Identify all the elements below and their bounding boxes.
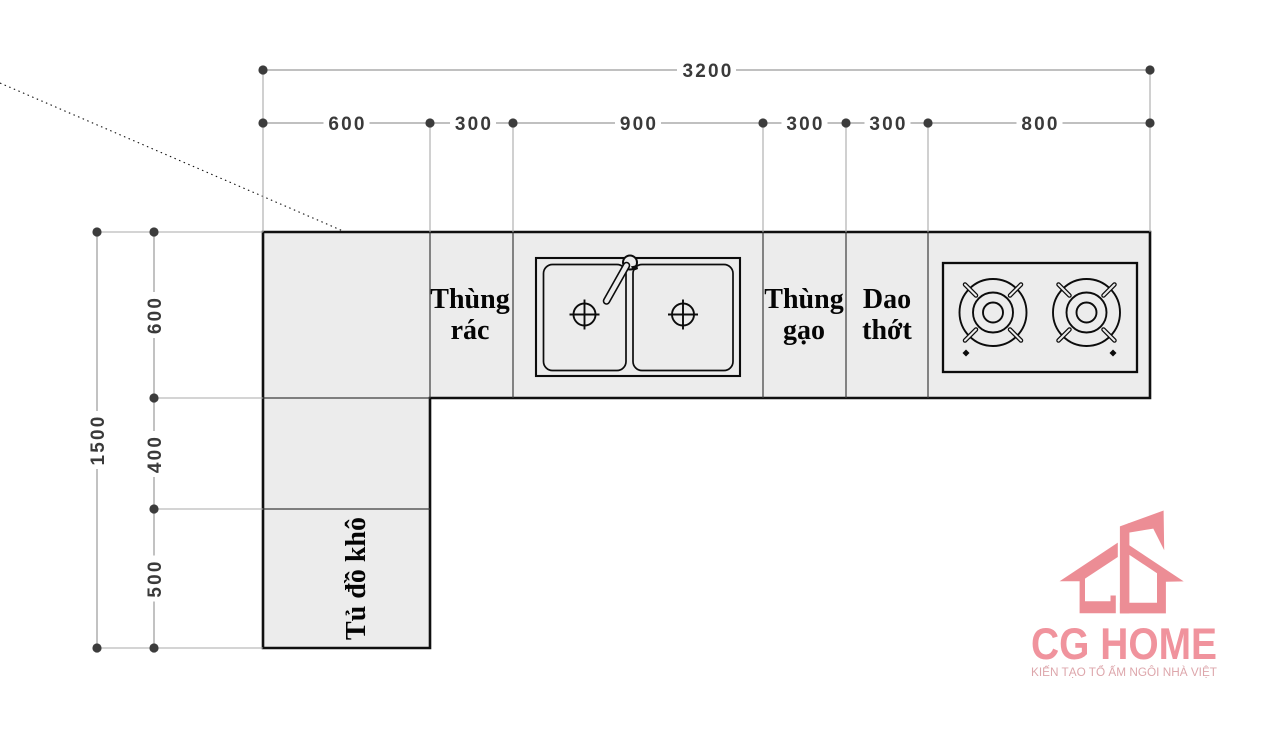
svg-text:Thùng: Thùng — [764, 284, 843, 315]
svg-text:300: 300 — [786, 114, 824, 135]
svg-text:CG HOME: CG HOME — [1031, 620, 1217, 669]
svg-text:Thùng: Thùng — [430, 284, 509, 315]
svg-text:300: 300 — [455, 114, 493, 135]
svg-text:600: 600 — [145, 296, 166, 334]
svg-text:500: 500 — [145, 559, 166, 597]
svg-text:600: 600 — [328, 114, 366, 135]
svg-text:Dao: Dao — [863, 284, 911, 315]
svg-text:800: 800 — [1021, 114, 1059, 135]
svg-text:300: 300 — [869, 114, 907, 135]
svg-text:1500: 1500 — [88, 414, 109, 465]
svg-text:900: 900 — [620, 114, 658, 135]
svg-text:thớt: thớt — [862, 315, 912, 346]
svg-text:3200: 3200 — [682, 61, 733, 82]
svg-text:KIẾN TẠO TỔ ẤM NGÔI NHÀ VIỆT: KIẾN TẠO TỔ ẤM NGÔI NHÀ VIỆT — [1031, 666, 1217, 679]
svg-text:gạo: gạo — [783, 315, 825, 346]
svg-text:rác: rác — [451, 315, 490, 346]
svg-text:400: 400 — [145, 435, 166, 473]
svg-text:Tủ đồ khô: Tủ đồ khô — [341, 517, 372, 640]
